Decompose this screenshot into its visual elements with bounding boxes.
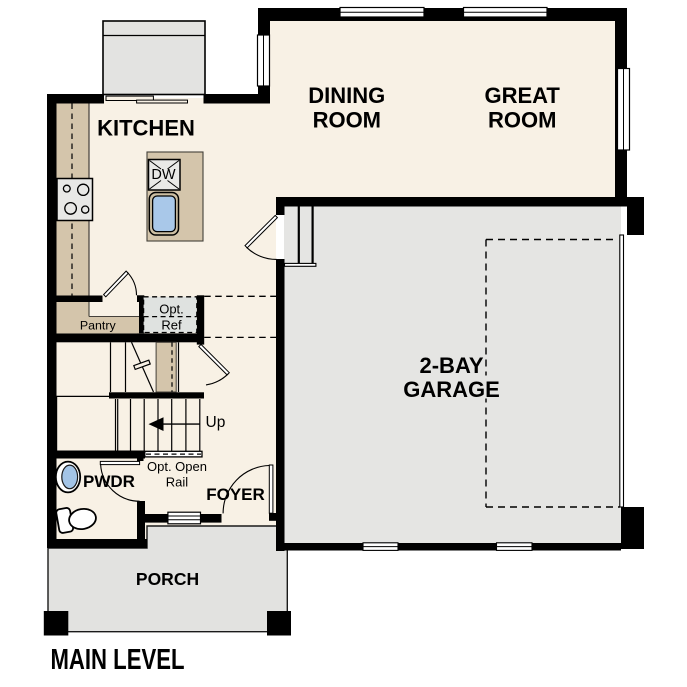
svg-text:ROOM: ROOM — [313, 107, 381, 132]
svg-text:Rail: Rail — [166, 474, 189, 489]
svg-text:KITCHEN: KITCHEN — [97, 116, 195, 141]
svg-text:Pantry: Pantry — [80, 318, 117, 332]
svg-text:Ref: Ref — [161, 317, 182, 332]
svg-text:GARAGE: GARAGE — [403, 377, 500, 402]
svg-text:PORCH: PORCH — [136, 569, 199, 589]
svg-text:Opt. Open: Opt. Open — [147, 459, 207, 474]
svg-text:2-BAY: 2-BAY — [420, 353, 484, 378]
svg-text:ROOM: ROOM — [488, 107, 556, 132]
svg-text:DINING: DINING — [308, 83, 385, 108]
svg-text:FOYER: FOYER — [206, 485, 265, 504]
svg-text:PWDR: PWDR — [83, 472, 135, 491]
svg-text:DW: DW — [151, 167, 175, 183]
svg-text:GREAT: GREAT — [485, 83, 561, 108]
svg-text:Opt.: Opt. — [159, 301, 184, 316]
svg-text:Up: Up — [206, 414, 226, 431]
svg-text:MAIN LEVEL: MAIN LEVEL — [51, 644, 185, 676]
